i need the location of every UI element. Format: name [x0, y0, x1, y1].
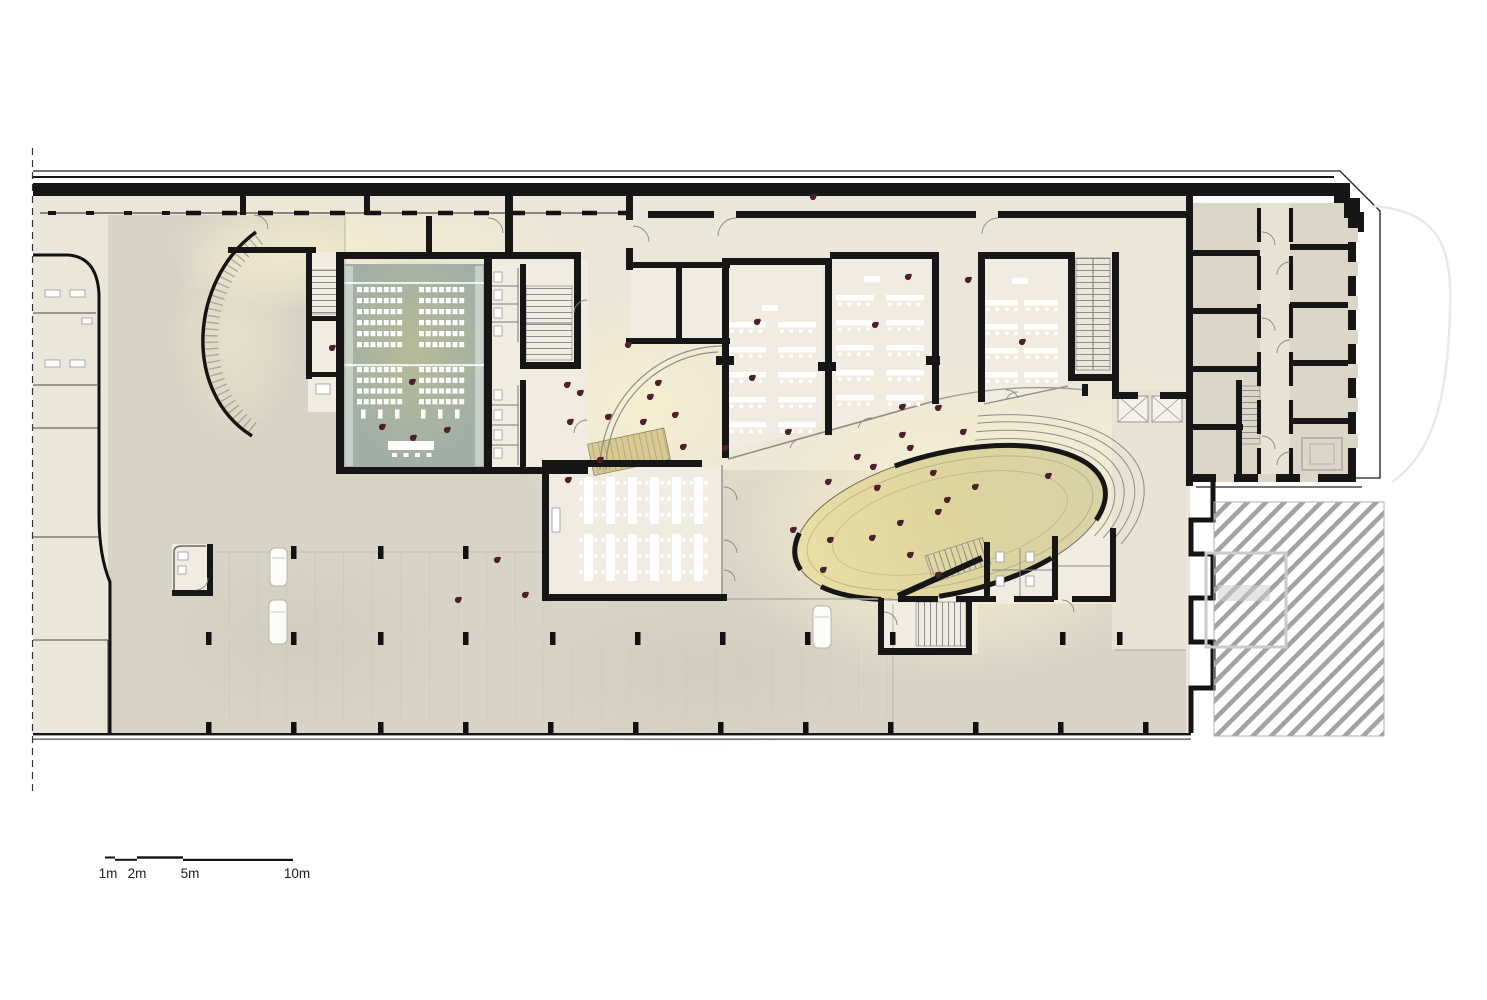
hatch-region — [1206, 502, 1384, 736]
scale-label-1m: 1m — [99, 866, 118, 881]
stage-table — [388, 441, 434, 450]
scale-label-10m: 10m — [284, 866, 310, 881]
auditorium-group — [335, 244, 491, 468]
scale-bar: 1m 2m 5m 10m — [99, 856, 311, 881]
lobby-stair — [311, 270, 337, 314]
notched-edge-wall — [1191, 482, 1213, 733]
scale-label-2m: 2m — [128, 866, 147, 881]
floor-plan-canvas: 1m 2m 5m 10m — [0, 0, 1487, 1000]
site-boundary-curve — [1374, 206, 1450, 482]
lower-stair — [916, 602, 966, 646]
floor-plan-page: 1m 2m 5m 10m — [0, 0, 1487, 1000]
scale-label-5m: 5m — [181, 866, 200, 881]
parking-stall-lines — [206, 552, 556, 630]
